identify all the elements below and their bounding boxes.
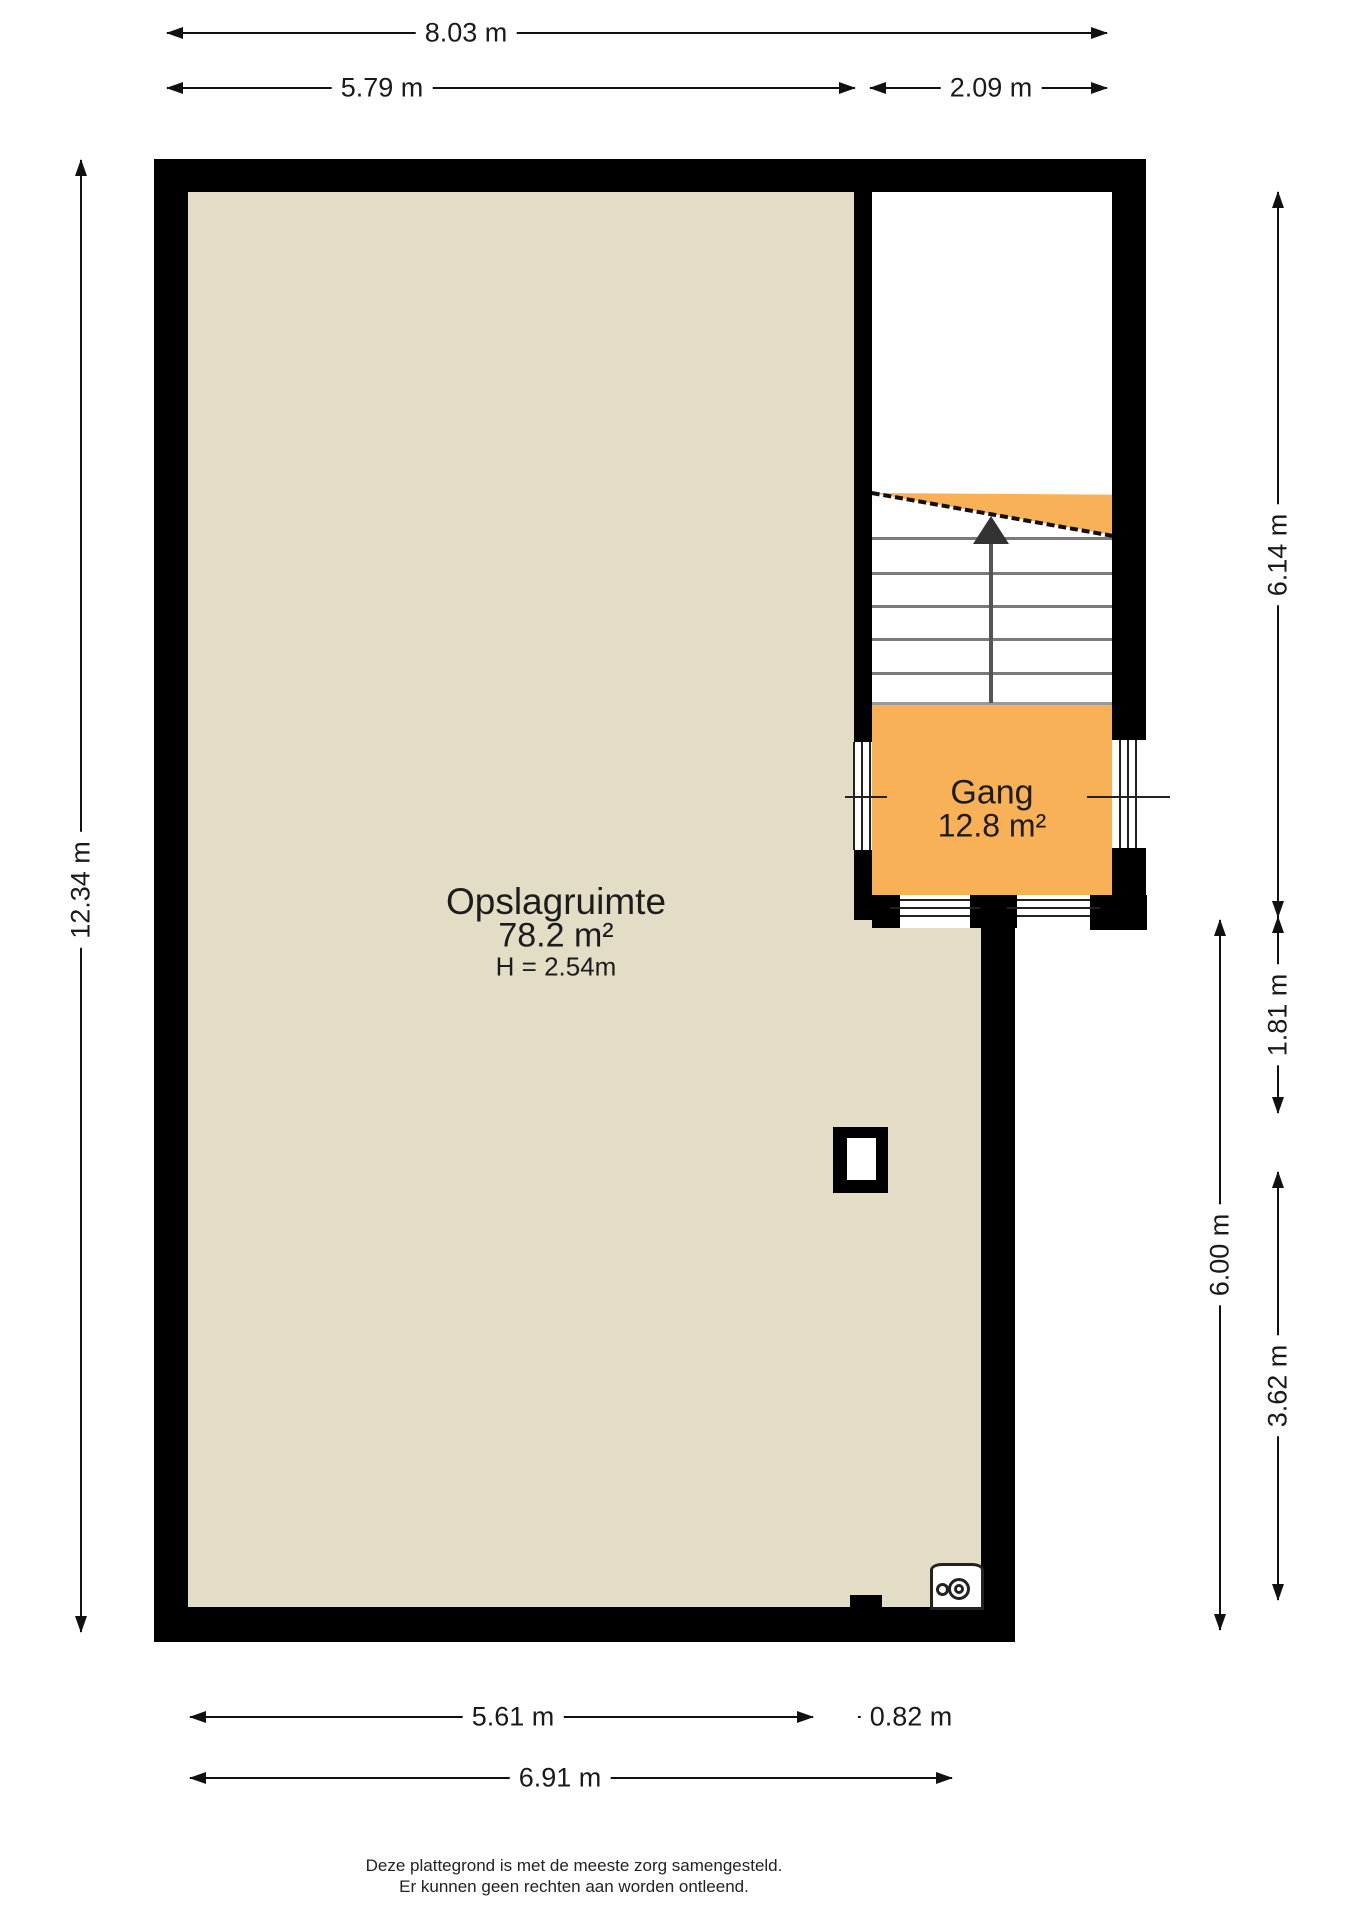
dim-label-right-inner: 6.00 m [1205, 1205, 1236, 1306]
room-area-opslagruimte: 78.2 m² [498, 917, 613, 956]
wall-bottom [154, 1607, 1015, 1642]
wall-divider-stairwell [854, 192, 872, 742]
structural-column-core [847, 1138, 876, 1180]
dim-label-right-lower: 3.62 m [1263, 1336, 1294, 1437]
dim-line-top-left [167, 87, 855, 89]
dim-label-top-right: 2.09 m [941, 73, 1042, 104]
floorplan-canvas: Opslagruimte 78.2 m² H = 2.54m Gang 12.8… [0, 0, 1358, 1920]
dim-label-bottom-total: 6.91 m [510, 1763, 611, 1794]
room-height-opslagruimte: H = 2.54m [496, 952, 617, 983]
dim-line-top-total [167, 32, 1107, 34]
dim-label-top-total: 8.03 m [416, 18, 517, 49]
stairs-arrow-head-icon [973, 516, 1009, 544]
dim-label-top-left: 5.79 m [332, 73, 433, 104]
wall-right-lower [981, 895, 1015, 1642]
footer-disclaimer-line1: Deze plattegrond is met de meeste zorg s… [366, 1856, 783, 1876]
window-gang-right [1112, 740, 1147, 848]
wall-left [154, 159, 188, 1642]
wall-gang-bottom-left [872, 895, 900, 928]
opslagruimte-floor-extension [854, 920, 981, 1610]
dim-label-right-upper: 6.14 m [1263, 505, 1294, 606]
dim-label-bottom-right: 0.82 m [861, 1702, 962, 1733]
dim-label-right-mid: 1.81 m [1263, 965, 1294, 1066]
stairs-direction-arrow [989, 540, 993, 703]
boiler-burner-inner-icon [954, 1584, 964, 1594]
dim-label-bottom-left: 5.61 m [463, 1702, 564, 1733]
room-area-gang: 12.8 m² [938, 808, 1046, 845]
wall-gang-bottom-corner [1090, 895, 1147, 930]
wall-gang-bottom-pier [970, 895, 1017, 928]
wall-divider-lower [854, 850, 872, 920]
dim-label-left-total: 12.34 m [66, 832, 97, 948]
wall-bottom-step [850, 1595, 882, 1609]
footer-disclaimer-line2: Er kunnen geen rechten aan worden ontlee… [399, 1877, 749, 1897]
wall-top [154, 159, 1146, 192]
